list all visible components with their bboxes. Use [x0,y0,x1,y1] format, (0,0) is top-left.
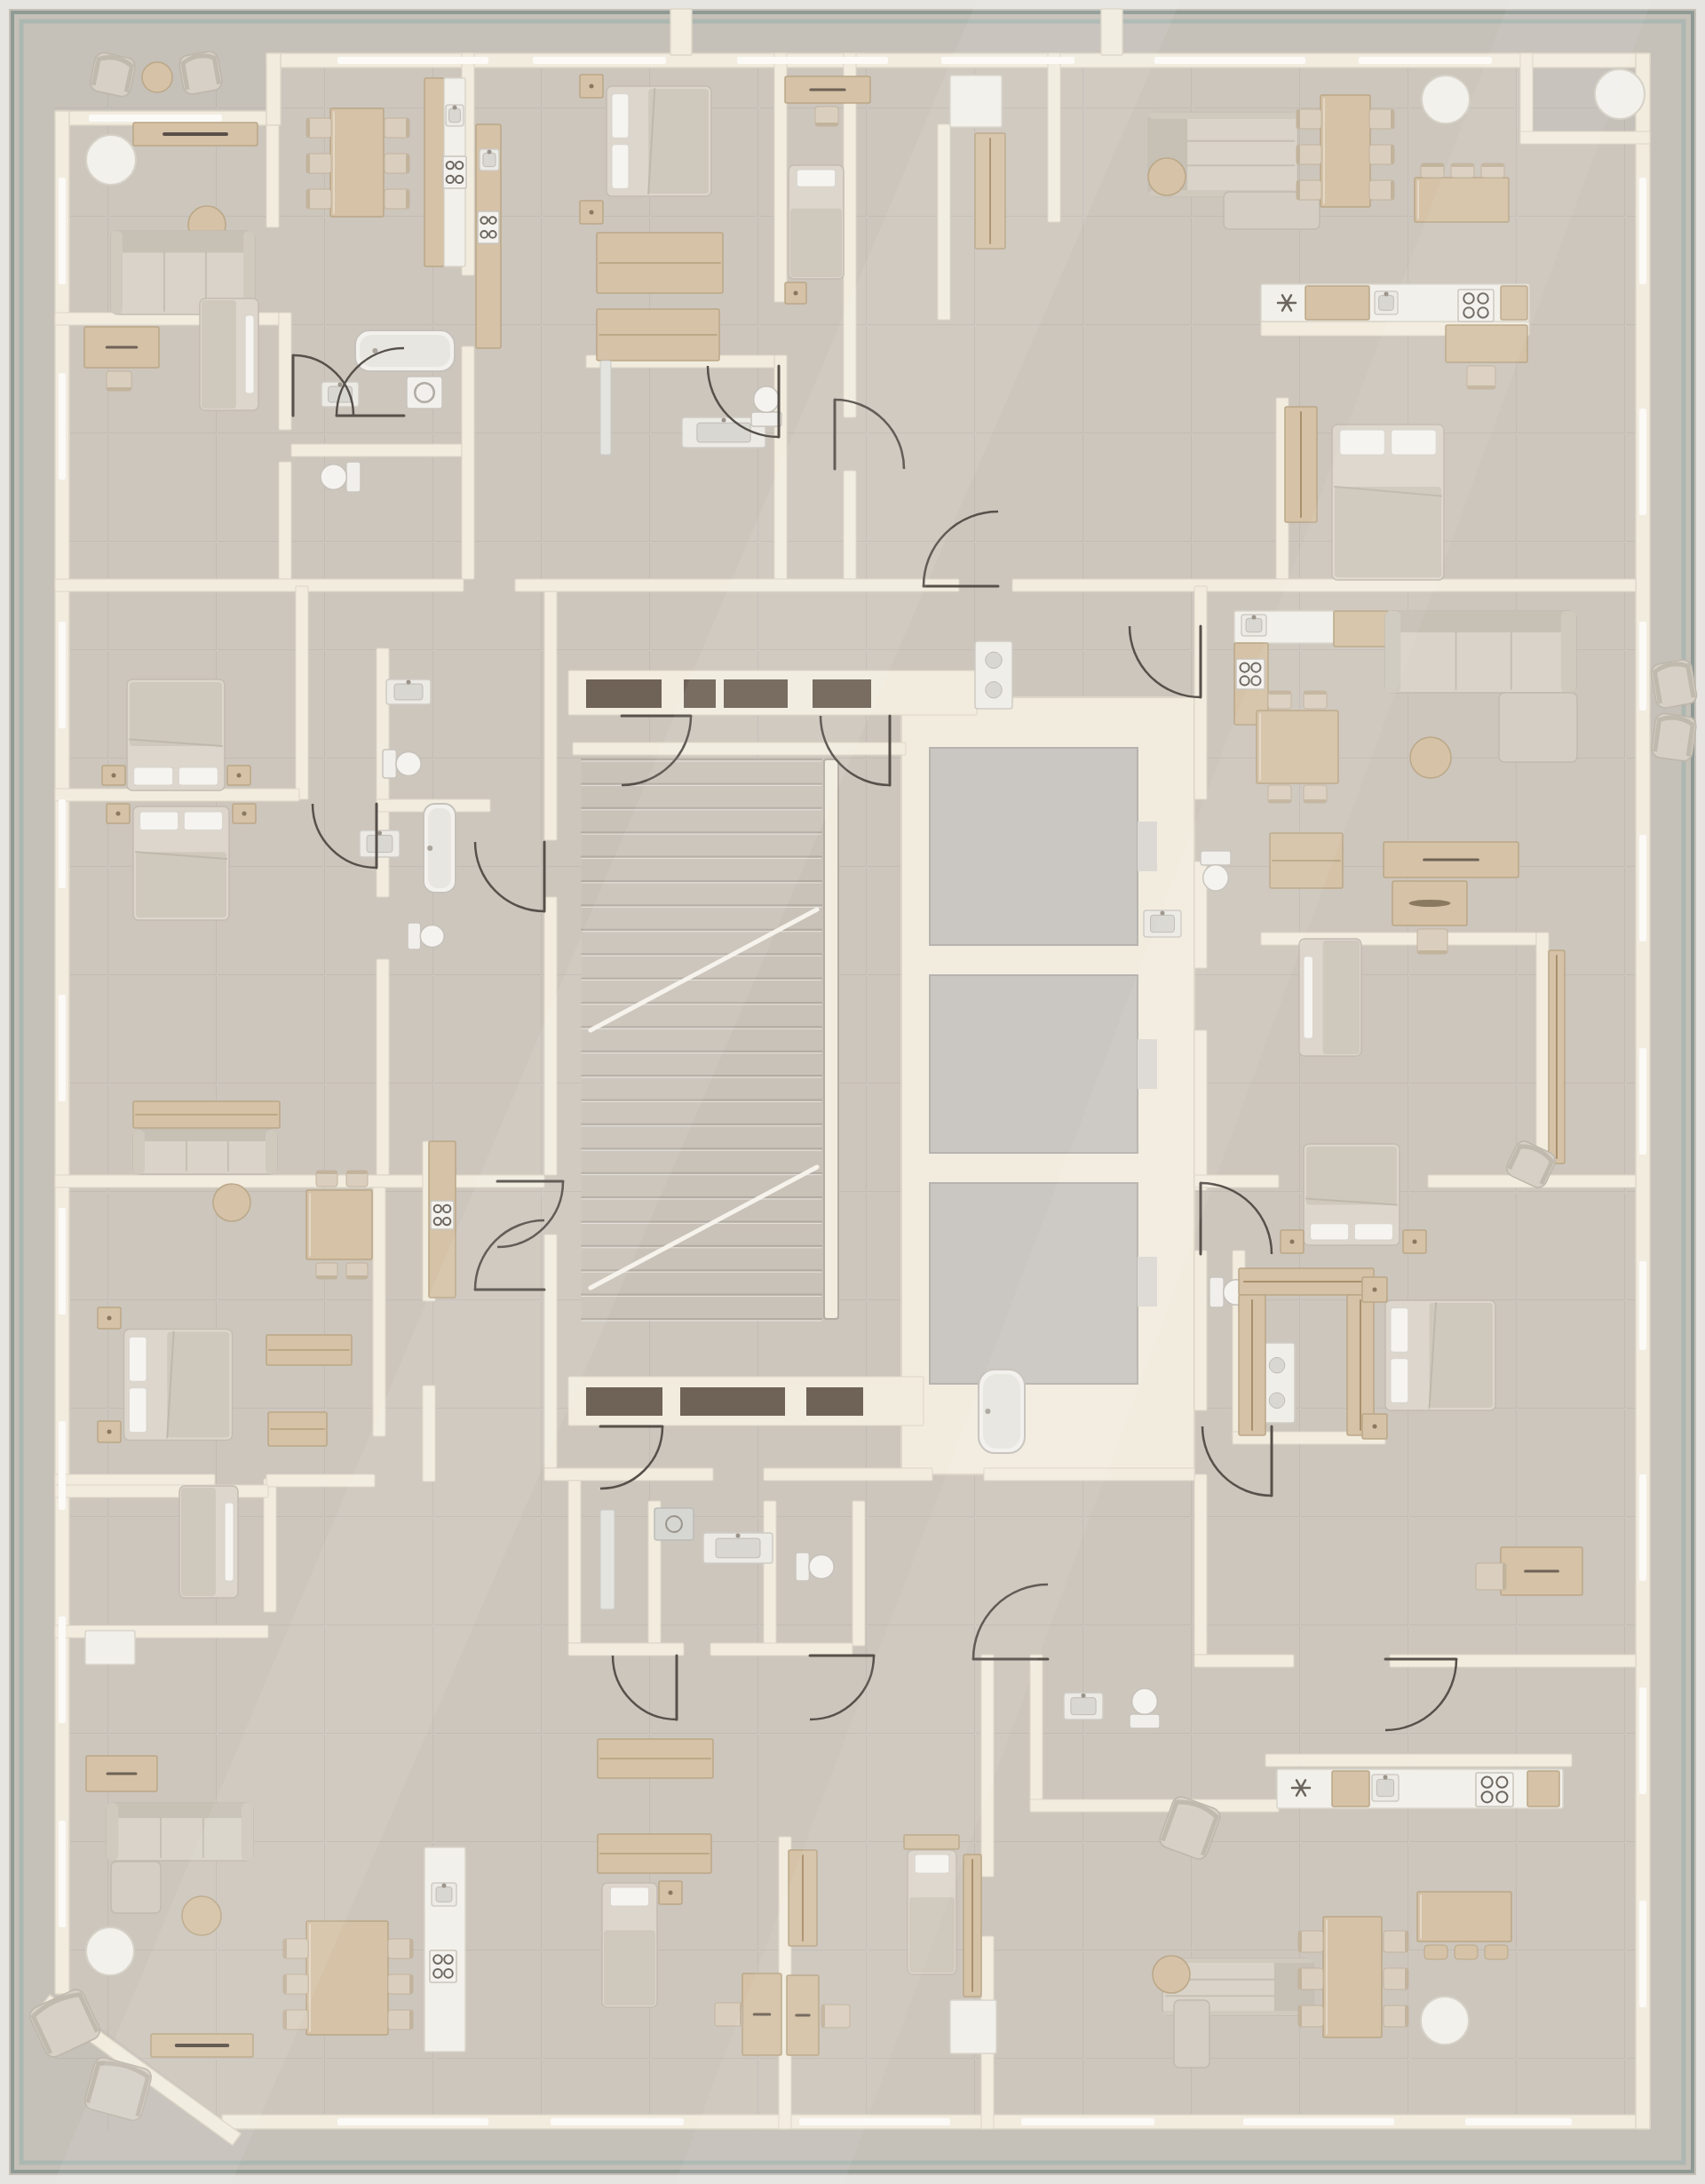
chair [1297,145,1321,164]
chaise [111,1862,161,1913]
chair [1476,1563,1506,1590]
shower-tray [654,1508,694,1540]
stove [431,1201,454,1229]
sink-basin [394,684,423,700]
chair-back [306,189,310,209]
nightstand [659,1881,682,1904]
window-strip [59,373,66,480]
chair-back [409,1974,413,1994]
toilet-bowl [754,386,780,412]
desk [1501,1547,1582,1595]
chair-back [346,1275,368,1279]
pillow [612,94,629,139]
sink-basin [1071,1697,1096,1714]
pillow [130,1337,147,1381]
interior-wall [266,125,279,227]
chair-back [1405,1968,1408,1989]
chair-seat [306,118,331,138]
chair-back [406,154,409,173]
pillow [612,145,629,189]
exterior-wall [266,53,281,125]
service-niche [806,1387,863,1416]
counter_wood [1305,286,1369,320]
chair [388,1939,413,1958]
chair-back [107,387,131,391]
toilet [751,386,781,426]
chair [1297,109,1321,129]
window-strip [1639,178,1646,284]
elevator-door-slit [1138,822,1157,871]
chair [385,118,409,138]
chair-seat [1384,1931,1408,1952]
nightstand [1281,1230,1304,1253]
toilet-tank [408,923,421,949]
shelf [597,309,719,361]
nightstand [580,75,603,98]
window-strip [1639,622,1646,711]
stool-seat [1424,1945,1447,1959]
bathtub [355,330,455,371]
panel [600,1510,615,1609]
chair-back [406,118,409,138]
bed-double [1304,1144,1400,1245]
armchair [89,52,137,99]
window-strip [1243,2118,1394,2125]
interior-wall [55,1175,544,1187]
armchair [178,51,224,96]
vanity-counter [975,641,1012,709]
counter-wood [1305,286,1369,320]
chair-back [316,1171,337,1174]
sink [1241,615,1266,636]
chair [1298,1968,1323,1989]
bed-blanket [790,209,842,277]
knob [1413,1240,1417,1244]
nightstand [1403,1230,1426,1253]
drawer-handle [1408,900,1450,907]
shelf [266,1335,352,1365]
wardrobe [1549,950,1565,1163]
bed-blanket [167,1332,229,1438]
chair [385,189,409,209]
interior-wall [377,959,389,1175]
sink [360,830,400,857]
chair [815,107,838,126]
chair-back [1405,1931,1408,1952]
toilet-tank [346,462,361,492]
balcony-area [9,9,1696,55]
interior-wall [279,462,291,579]
stove-top [430,1950,456,1982]
balcony-area [1650,9,1696,2175]
chaise-pad [1174,2000,1209,2068]
chaise-pad [111,1862,161,1913]
bed-blanket [181,1488,216,1596]
bed-single [200,298,258,410]
chair [1297,180,1321,200]
bed-double [127,679,225,790]
nightstand [107,804,130,823]
chair-back [406,189,409,209]
chair-seat [1297,145,1321,164]
counter-wood [424,78,444,266]
sink [432,1883,456,1906]
pillow [797,170,835,187]
knob [590,210,594,215]
interior-wall [544,1468,713,1481]
sink-tap [722,418,726,423]
shelf [133,1101,280,1128]
counter_wood [424,78,444,266]
chair-seat [388,1974,413,1994]
basin [1269,1357,1285,1373]
stove-top [431,1201,454,1229]
interior-wall [1030,1799,1279,1812]
interior-wall [264,1479,276,1612]
interior-wall [568,1481,581,1643]
sink-tap [488,150,492,155]
chair-back [1391,145,1394,164]
interior-wall [1390,1655,1636,1667]
floor-plan-page [0,0,1705,2184]
bed-single [789,165,844,279]
bed-single [1299,939,1361,1056]
nightstand [1362,1277,1387,1302]
toilet [796,1553,834,1581]
counter_wood [1332,1771,1369,1807]
pillow [140,812,178,830]
chair-back [306,118,310,138]
nightstand [98,1421,121,1442]
toilet-tank [1209,1277,1224,1307]
bed-blanket [136,852,226,917]
dining_table-top [330,108,384,217]
table-round [142,62,172,92]
interior-wall [568,1643,684,1656]
bed-single [602,1883,657,2007]
sofa-arm [266,1130,277,1174]
stove [1476,1773,1513,1807]
chair [1369,109,1394,129]
chair [388,1974,413,1994]
round-table-top [86,135,136,185]
toilet [408,923,444,949]
balcony-area [9,9,55,2175]
dining_table-top [1320,95,1370,207]
sofa-back [133,1130,277,1141]
interior-wall [55,579,464,592]
dining-table [306,1190,372,1259]
bed-blanket [130,682,222,746]
sink [446,105,464,126]
chaise [1499,693,1577,762]
window-strip [1639,835,1646,941]
window-strip [59,1421,66,1510]
island-top [1417,1892,1511,1942]
chair-seat [306,154,331,173]
dining-table [1323,1917,1382,2037]
interior-wall [544,592,557,840]
pillow [1354,1224,1392,1240]
knob [669,1891,673,1895]
toilet-tank [383,750,396,778]
chair-back [1405,2005,1408,2027]
pillow [1304,957,1313,1038]
glass-panel [600,361,611,455]
window-strip [551,2118,684,2125]
chair [388,2010,413,2029]
window-strip [59,1208,66,1314]
desk [785,76,870,103]
round-table-top [142,62,172,92]
chair [1384,1931,1408,1952]
chair-seat [1384,2005,1408,2027]
interior-wall [764,1468,932,1481]
desk [84,327,159,368]
basin [1269,1393,1285,1409]
pillow [1311,1224,1349,1240]
chair-seat [1298,1931,1323,1952]
elevator-cabin [930,748,1138,945]
window-strip [1639,1261,1646,1350]
toilet [383,750,421,778]
chair-seat [1476,1563,1506,1590]
counter_wood [1527,1771,1559,1807]
chair [346,1171,368,1187]
sink [480,149,499,171]
sink-tap [442,1884,447,1888]
service-niche [586,1387,662,1416]
chair [107,371,131,391]
interior-wall [852,1501,865,1646]
interior-wall [1536,933,1549,1175]
sink-tap [1082,1694,1086,1698]
sink-tap [736,1534,741,1538]
table-round [213,1184,250,1221]
knob [107,1430,112,1434]
chair-seat [385,154,409,173]
chair-seat [1298,2005,1323,2027]
interior-wall [296,586,308,799]
shelf [597,233,723,293]
stove-top [443,156,466,188]
wardrobe [964,1854,981,1997]
shelf [598,1834,711,1873]
chair-back [409,2010,413,2029]
pillow [184,812,222,830]
counter-white [1277,1769,1563,1808]
cabinet_white [85,1631,135,1664]
knob [237,774,242,778]
pillow [245,315,254,393]
chair [1421,163,1444,178]
glass-panel [600,1510,615,1609]
washer-body [407,377,442,409]
pouf [1422,75,1470,123]
counter-white [424,1847,465,2052]
counter_white [1277,1769,1563,1808]
pouf-top [1421,1997,1469,2045]
chair [1384,1968,1408,1989]
stove-top [478,211,499,243]
chair [316,1263,337,1279]
toilet-tank [1130,1714,1160,1728]
table-round-w [86,1927,134,1975]
cabinet-white [85,1631,135,1664]
sink [1064,1693,1103,1719]
chair [306,154,331,173]
bed-blanket [1306,1147,1397,1204]
chair-seat [1369,109,1394,129]
chair-back [1298,1931,1302,1952]
basin [986,652,1002,668]
chair-back [1391,109,1394,129]
sink [386,679,431,704]
toilet [1130,1688,1160,1728]
interior-wall [373,1187,385,1436]
stool [1424,1945,1447,1959]
window-strip [1465,2118,1572,2125]
sink-tap [338,383,343,387]
window-strip [59,1821,66,1927]
interior-wall [1194,1251,1207,1410]
chair [1384,2005,1408,2027]
pillow [130,1388,147,1433]
window-strip [1359,57,1492,64]
toilet-tank [796,1553,809,1581]
chair [1417,929,1447,954]
sofa-arm [107,1803,118,1861]
chair-back [815,123,838,126]
window-strip [89,115,222,122]
pillow [1391,1308,1408,1353]
chair-seat [385,189,409,209]
chair-back [316,1275,337,1279]
stool [1485,1945,1508,1959]
drawer [1392,881,1467,925]
knob [112,774,116,778]
toilet-bowl [420,925,444,947]
knob [116,812,121,816]
basin [986,681,1002,697]
chair-seat [1297,109,1321,129]
dining_table-top [1323,1917,1382,2037]
window-strip [533,57,666,64]
chair [316,1171,337,1187]
sink-tap [1384,292,1389,297]
stove-top [1476,1773,1513,1807]
chair-back [306,154,310,173]
table-round-w [86,135,136,185]
chair-back [1503,1563,1506,1590]
bed-double [133,806,229,920]
shelf [268,1412,327,1446]
cabinet_white [950,2000,996,2053]
chair [385,154,409,173]
stool-seat [1485,1945,1508,1959]
chair-seat [1369,180,1394,200]
bed-double [1385,1300,1495,1410]
window-strip [59,995,66,1101]
floor-plan-canvas [0,0,1705,2184]
chair-back [346,1171,368,1174]
wardrobe [1239,1295,1265,1435]
chair-back [1298,1968,1302,1989]
knob [242,812,247,816]
chair [306,189,331,209]
toilet-bowl [396,752,421,776]
counter-wood [1527,1771,1559,1807]
chair-seat [388,2010,413,2029]
stove [478,211,499,243]
window-strip [1639,409,1646,515]
window-strip [337,57,488,64]
toilet-bowl [321,465,346,490]
sink-basin [1379,296,1394,311]
interior-wall [1194,1655,1294,1667]
round-table-top [1148,158,1186,195]
sink-basin [436,1887,452,1902]
dining-table [330,108,384,217]
table-round [1148,158,1186,195]
sink-basin [1246,618,1262,631]
sofa [133,1130,277,1174]
nightstand [98,1307,121,1329]
window-strip [1639,1901,1646,2007]
pillow [225,1503,234,1581]
knob [590,84,594,89]
bed-double [607,86,711,196]
bed-blanket [202,300,236,409]
window-strip [1639,1688,1646,1794]
vanity2 [975,641,1012,709]
sofa-arm [111,231,123,314]
island [1417,1892,1511,1942]
bed-double [124,1330,233,1441]
nightstand [102,766,125,785]
sink-basin [367,835,393,852]
sink [703,1533,773,1563]
round-table-top [1410,737,1451,778]
bed-blanket [1430,1303,1493,1408]
pillow [178,767,218,785]
chair-seat [1297,180,1321,200]
table-round [1410,737,1451,778]
stove [443,156,466,188]
stool-seat [1455,1945,1478,1959]
toilet-tank [751,412,781,426]
sink-basin [716,1538,760,1558]
pillow [610,1887,648,1906]
round-table-top [86,1927,134,1975]
chair [306,118,331,138]
chair-back [1421,163,1444,167]
window-strip [59,178,66,284]
sink-tap [1252,615,1257,620]
window-strip [1154,57,1305,64]
stove [430,1950,456,1982]
chair-back [1417,950,1447,954]
interior-wall [279,313,291,430]
chair-back [1297,145,1300,164]
table-round [1153,1956,1190,1993]
counter_white [424,1847,465,2052]
bathtub [424,804,456,893]
chair-seat [1417,929,1447,954]
pillow [1391,1359,1408,1403]
stool [1455,1945,1478,1959]
chair [1369,180,1394,200]
